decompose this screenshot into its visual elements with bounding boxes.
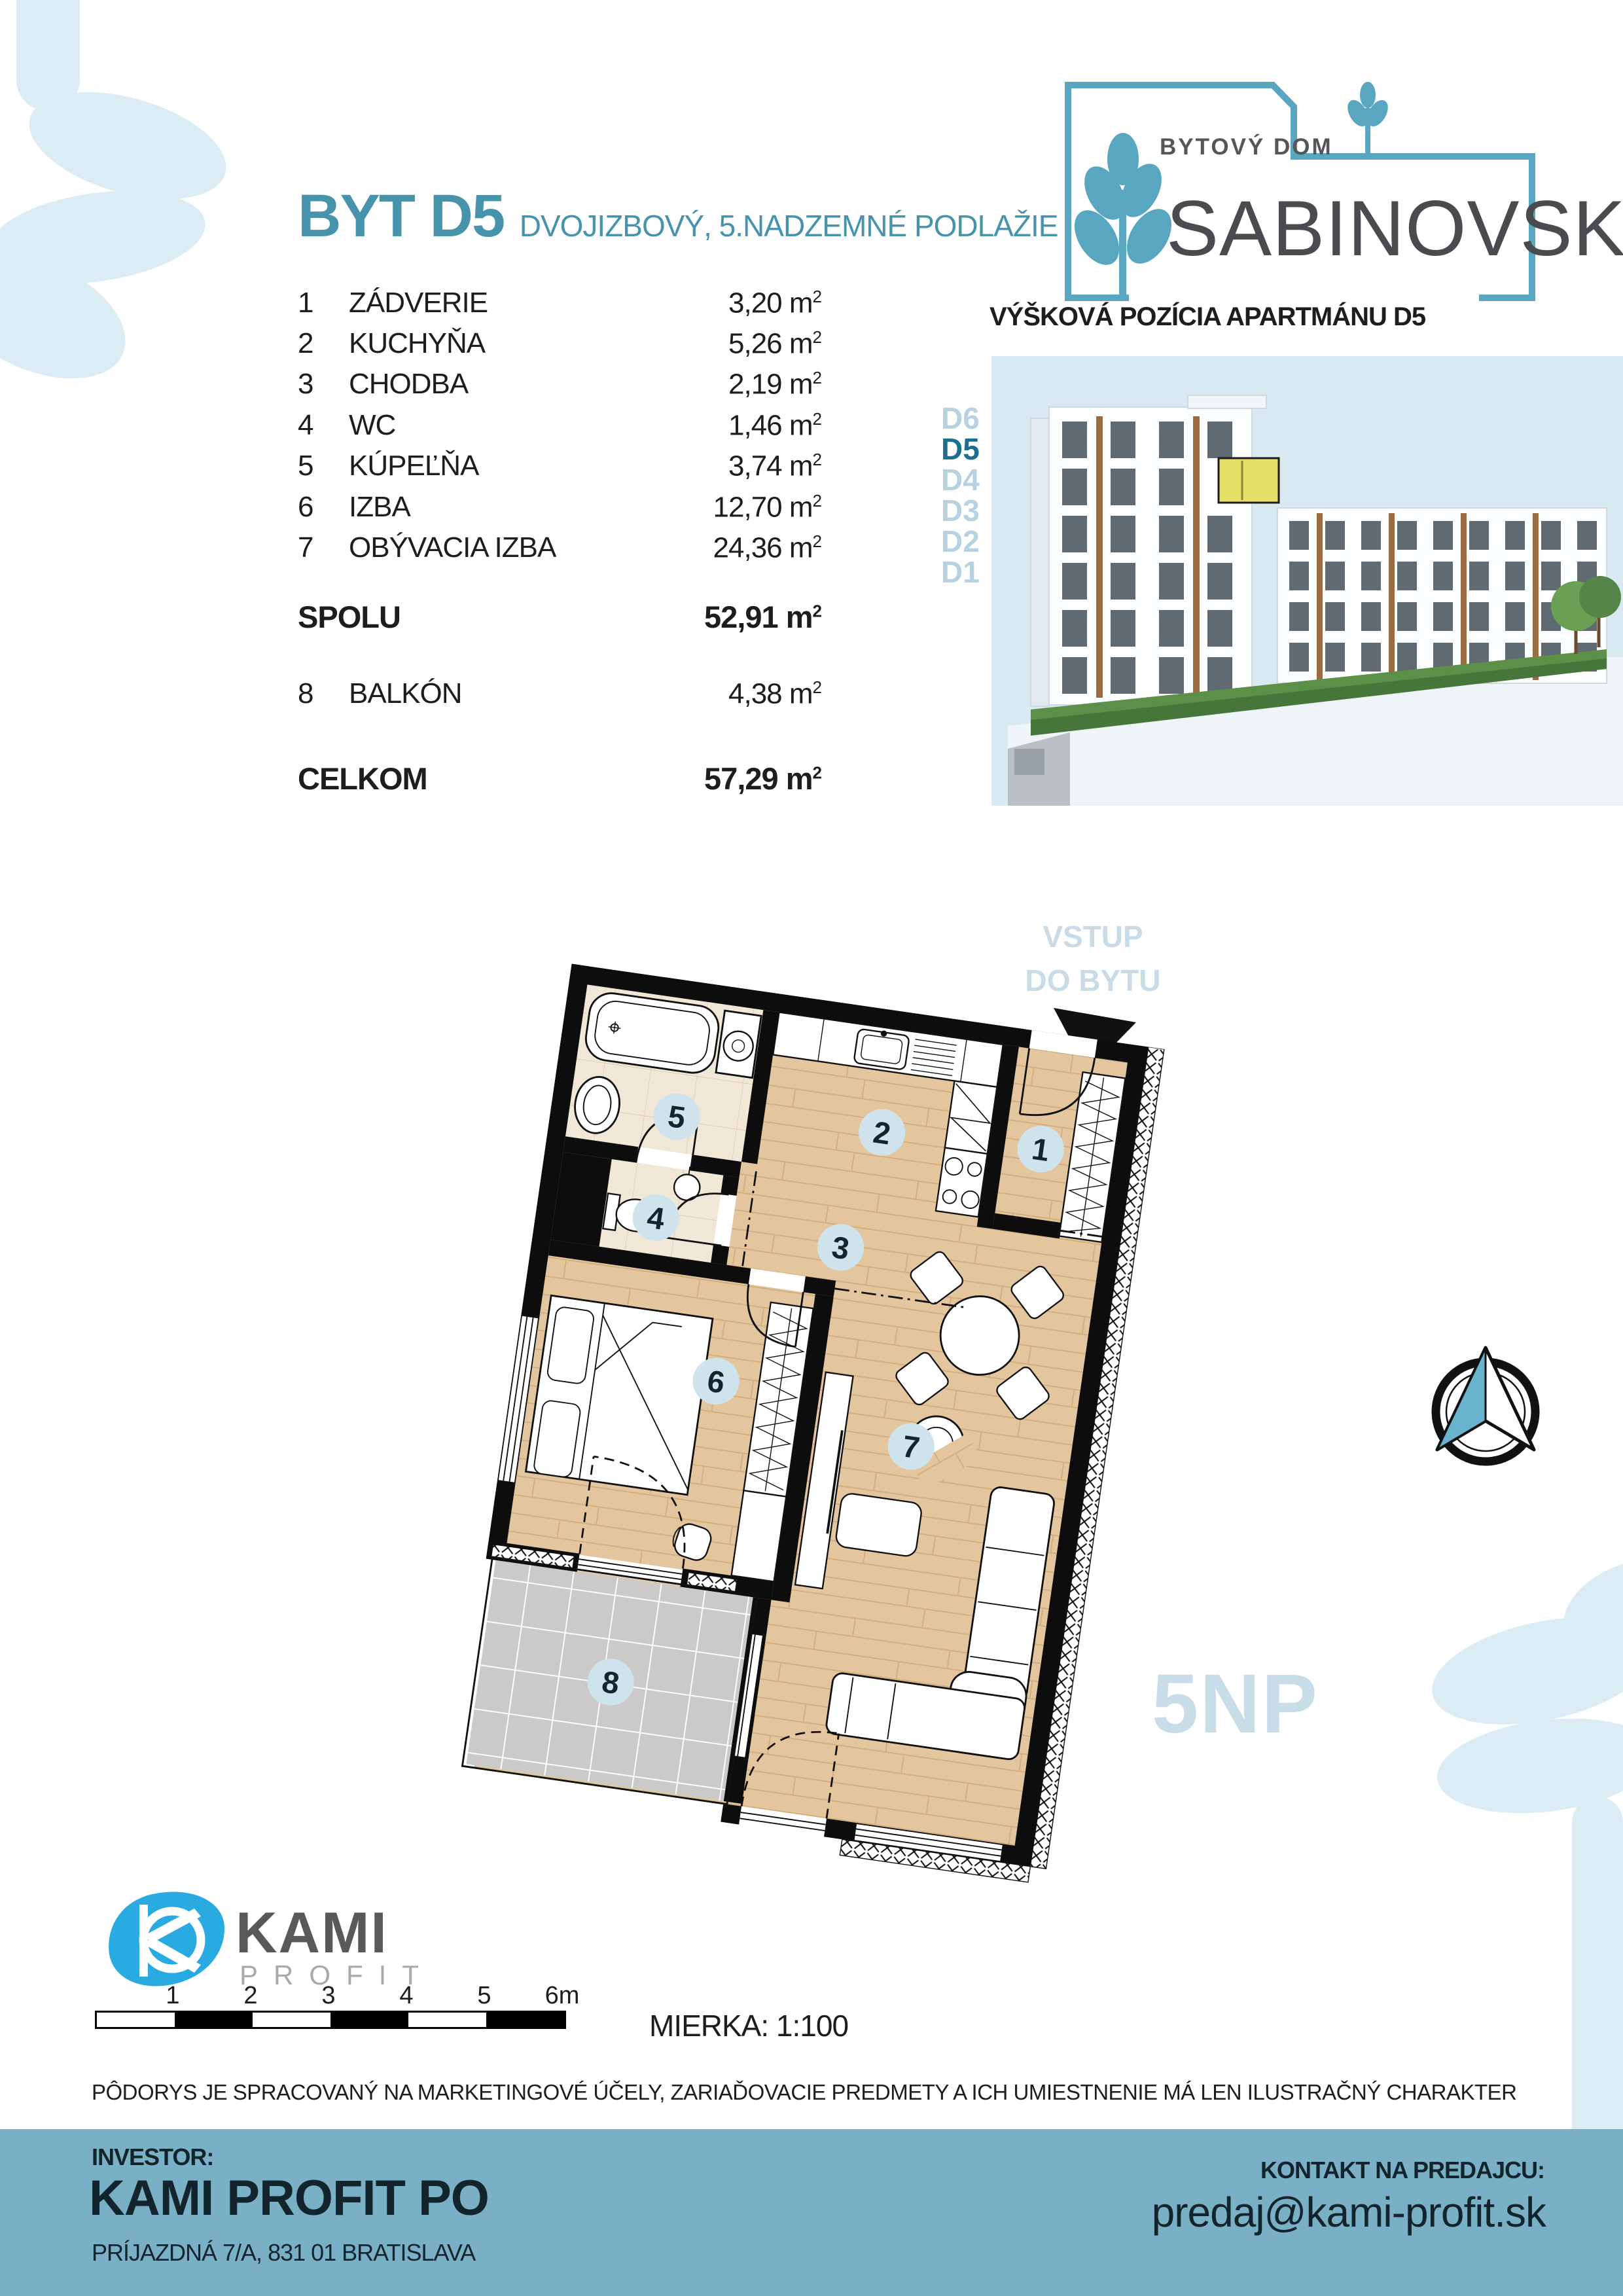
table-row: 5KÚPEĽŇA3,74 m2 [298,450,821,486]
kami-brand-name: KAMI [236,1899,388,1966]
washing-machine [716,1011,761,1078]
brochure-page: BYTOVÝ DOM SABINOVSKÁ BYT D5 DVOJIZBOVÝ,… [0,0,1623,2296]
floor-plan: 1 2 3 4 5 6 7 8 [449,964,1209,1906]
scale-label: 6m [543,1982,582,2010]
building-render [991,356,1623,806]
scale-label: 5 [465,1982,504,2010]
table-total-row: SPOLU52,91 m2 [298,599,821,636]
logo-line1: BYTOVÝ DOM [1160,134,1333,160]
row-num: 8 [298,677,313,710]
row-num: 5 [298,450,313,482]
table-row: 1ZÁDVERIE3,20 m2 [298,287,821,323]
row-num: 6 [298,491,313,524]
investor-company: KAMI PROFIT PO [89,2170,489,2227]
table-row: 2KUCHYŇA5,26 m2 [298,327,821,364]
disclaimer-text: PÔDORYS JE SPRACOVANÝ NA MARKETINGOVÉ ÚČ… [92,2080,1516,2105]
row-num: 1 [298,287,313,319]
row-area: 2,19 m2 [728,368,821,401]
row-name: BALKÓN [349,677,462,710]
scale-text: MIERKA: 1:100 [649,2008,848,2043]
table-row: 7OBÝVACIA IZBA24,36 m2 [298,531,821,568]
row-name: KÚPEĽŇA [349,450,478,482]
kami-logo-icon [101,1890,232,1988]
floor-label-d6: D6 [941,401,993,436]
row-name: WC [349,409,395,442]
row-name: ZÁDVERIE [349,287,488,319]
row-name: OBÝVACIA IZBA [349,531,556,564]
row-num: 3 [298,368,313,401]
row-area: 12,70 m2 [713,491,821,524]
contact-label: KONTAKT NA PREDAJCU: [1260,2157,1544,2184]
floor-label-d1: D1 [941,554,993,590]
row-num: 4 [298,409,313,442]
table-row: 3CHODBA2,19 m2 [298,368,821,404]
compass-icon [1420,1338,1551,1469]
sprig-icon [1344,82,1393,156]
floor-label-d3: D3 [941,493,993,528]
page-title: BYT D5 DVOJIZBOVÝ, 5.NADZEMNÉ PODLAŽIE [298,182,1058,251]
row-area: 1,46 m2 [728,409,821,442]
entry-label-line1: VSTUP [1008,915,1178,959]
bed [526,1295,712,1495]
total-label: SPOLU [298,599,401,635]
contact-email[interactable]: predaj@kami-profit.sk [1152,2188,1546,2236]
scale-bar-segments [95,2011,566,2029]
scale-label: 1 [153,1982,192,2010]
coffee-table [835,1492,923,1557]
entry-label: VSTUP DO BYTU [1008,915,1178,1002]
investor-label: INVESTOR: [92,2144,213,2171]
row-name: IZBA [349,491,410,524]
investor-address: PRÍJAZDNÁ 7/A, 831 01 BRATISLAVA [92,2239,475,2267]
apartment-subtitle: DVOJIZBOVÝ, 5.NADZEMNÉ PODLAŽIE [520,209,1058,243]
row-area: 3,74 m2 [728,450,821,483]
floor-label-d5: D5 [941,431,993,467]
scale-label: 3 [309,1982,348,2010]
decor-stem-right [1572,1797,1623,2130]
table-grand-row: CELKOM57,29 m2 [298,761,821,797]
total-area: 52,91 m2 [704,599,821,635]
grand-label: CELKOM [298,761,427,797]
entry-label-line2: DO BYTU [1008,959,1178,1003]
row-num: 7 [298,531,313,564]
row-area: 3,20 m2 [728,287,821,320]
table-row: 4WC1,46 m2 [298,409,821,446]
row-area: 4,38 m2 [728,677,821,711]
row-num: 2 [298,327,313,360]
table-balcony-row: 8BALKÓN4,38 m2 [298,677,821,714]
stove [936,1148,988,1217]
row-name: KUCHYŇA [349,327,485,360]
highlighted-unit [1219,458,1279,503]
floor-tag: 5NP [1152,1656,1319,1752]
floor-label-d2: D2 [941,524,993,559]
row-name: CHODBA [349,368,468,401]
row-area: 24,36 m2 [713,531,821,565]
logo-line2: SABINOVSKÁ [1166,183,1623,274]
apartment-id: BYT D5 [298,183,504,249]
table-row: 6IZBA12,70 m2 [298,491,821,528]
footer: INVESTOR: KAMI PROFIT PO PRÍJAZDNÁ 7/A, … [0,2129,1623,2296]
row-area: 5,26 m2 [728,327,821,361]
scale-label: 4 [387,1982,426,2010]
kitchen-tall-cabinet [945,1081,997,1154]
building-left [1031,395,1266,706]
grand-area: 57,29 m2 [704,761,821,797]
scale-label: 2 [231,1982,270,2010]
floor-label-d4: D4 [941,462,993,497]
render-title: VÝŠKOVÁ POZÍCIA APARTMÁNU D5 [990,302,1425,332]
